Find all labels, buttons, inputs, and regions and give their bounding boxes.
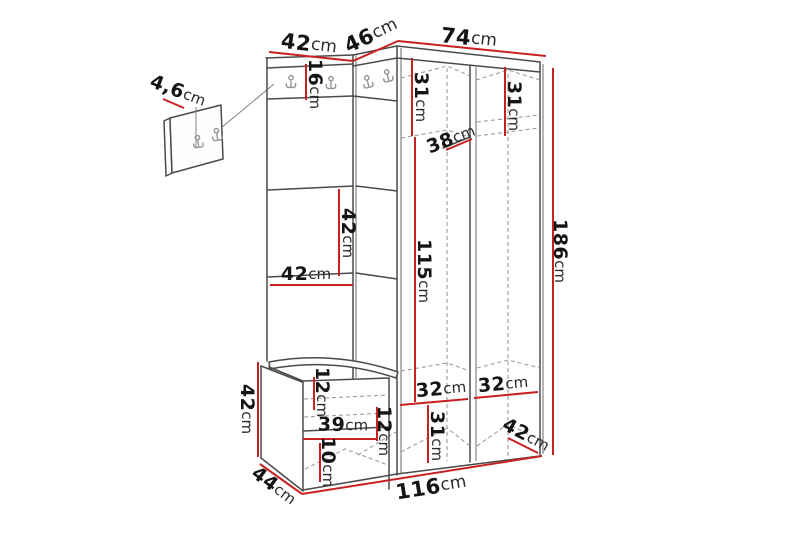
hook-icon: [326, 77, 335, 89]
dim-label-panel-section-height: 42cm: [337, 208, 359, 258]
dim-label-bench-depth: 44cm: [247, 462, 300, 510]
dim-label-bench-height: 42cm: [236, 384, 258, 434]
hook-icon: [382, 69, 394, 83]
dim-label-right-top-compartment: 31cm: [503, 81, 525, 131]
hook-icon: [286, 76, 295, 88]
corner-top-band: [353, 58, 397, 66]
hook-icon: [362, 75, 374, 89]
dim-label-total-width: 116cm: [394, 470, 468, 505]
bench-seat-front-drop: [269, 367, 303, 381]
dim-label-bottom-left-compartment: 32cm: [415, 376, 467, 402]
corner-divider-2: [356, 273, 397, 279]
dim-label-bench-top-gap: 12cm: [311, 367, 333, 417]
dim-label-bench-mid-gap: 12cm: [373, 406, 395, 456]
dim-label-bench-shelf-width: 39cm: [318, 414, 369, 437]
dim-label-bottom-compartment-height: 31cm: [426, 411, 448, 461]
corner-hook-rail-bottom: [353, 96, 397, 101]
dim-label-hanging-space: 115cm: [413, 239, 435, 303]
dim-label-bench-bottom-gap: 10cm: [317, 437, 339, 487]
dim-label-total-height: 186cm: [549, 219, 571, 283]
dim-label-top-right-width: 74cm: [440, 23, 498, 53]
diagram-canvas: 42cm 46cm 74cm 4,6cm 16cm 31cm 31cm 38cm…: [0, 0, 800, 533]
wardrobe-bottom-edge: [397, 456, 540, 474]
bench-left-side-top: [261, 366, 302, 382]
corner-divider-1: [356, 186, 397, 191]
dim-label-panel-section-width: 42cm: [281, 263, 331, 285]
dim-label-wardrobe-depth: 42cm: [499, 413, 554, 456]
panel-callout-line: [221, 84, 274, 128]
dimension-labels: 42cm 46cm 74cm 4,6cm 16cm 31cm 31cm 38cm…: [147, 12, 571, 510]
dim-label-hook-rail-height: 16cm: [304, 59, 326, 109]
dim-label-left-top-compartment: 31cm: [410, 72, 432, 122]
left-panel-divider-1: [268, 186, 353, 190]
furniture-dimension-diagram: 42cm 46cm 74cm 4,6cm 16cm 31cm 31cm 38cm…: [0, 0, 800, 533]
